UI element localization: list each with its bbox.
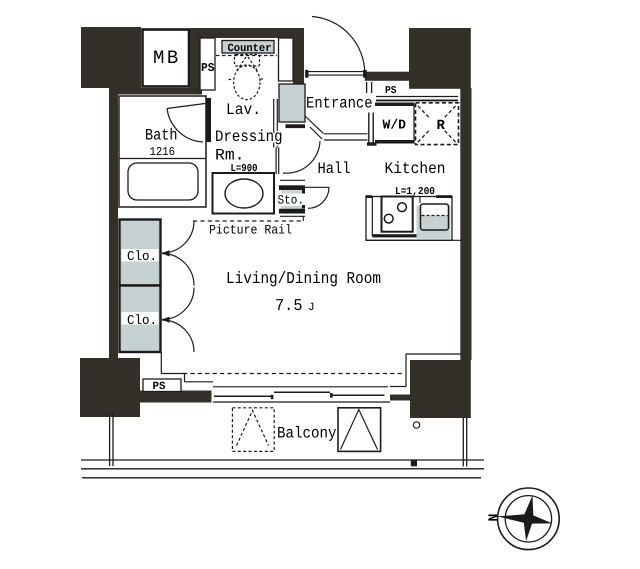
svg-text:Rm.: Rm. (215, 147, 245, 165)
svg-text:Entrance: Entrance (306, 95, 373, 113)
svg-text:PS: PS (153, 381, 166, 393)
svg-text:Bath: Bath (145, 127, 178, 145)
svg-text:Lav.: Lav. (226, 101, 261, 119)
svg-text:N: N (486, 514, 501, 522)
svg-text:PS: PS (201, 61, 215, 75)
svg-text:Balcony: Balcony (277, 425, 337, 443)
svg-text:Living/Dining Room: Living/Dining Room (226, 269, 381, 288)
svg-text:Clo.: Clo. (127, 250, 157, 265)
svg-text:R: R (437, 118, 446, 134)
svg-text:Hall: Hall (318, 160, 351, 178)
svg-text:Kitchen: Kitchen (385, 160, 446, 178)
svg-text:Picture Rail: Picture Rail (209, 223, 292, 238)
svg-text:Clo.: Clo. (127, 314, 157, 329)
svg-text:PS: PS (385, 85, 397, 97)
svg-text:1216: 1216 (150, 145, 176, 159)
svg-text:Sto.: Sto. (278, 194, 305, 208)
svg-text:W/D: W/D (383, 119, 407, 134)
svg-text:MB: MB (153, 47, 181, 69)
svg-text:Dressing: Dressing (215, 128, 283, 146)
svg-text:J: J (308, 302, 315, 314)
svg-text:7.5: 7.5 (275, 296, 303, 315)
svg-text:Counter: Counter (228, 43, 272, 55)
